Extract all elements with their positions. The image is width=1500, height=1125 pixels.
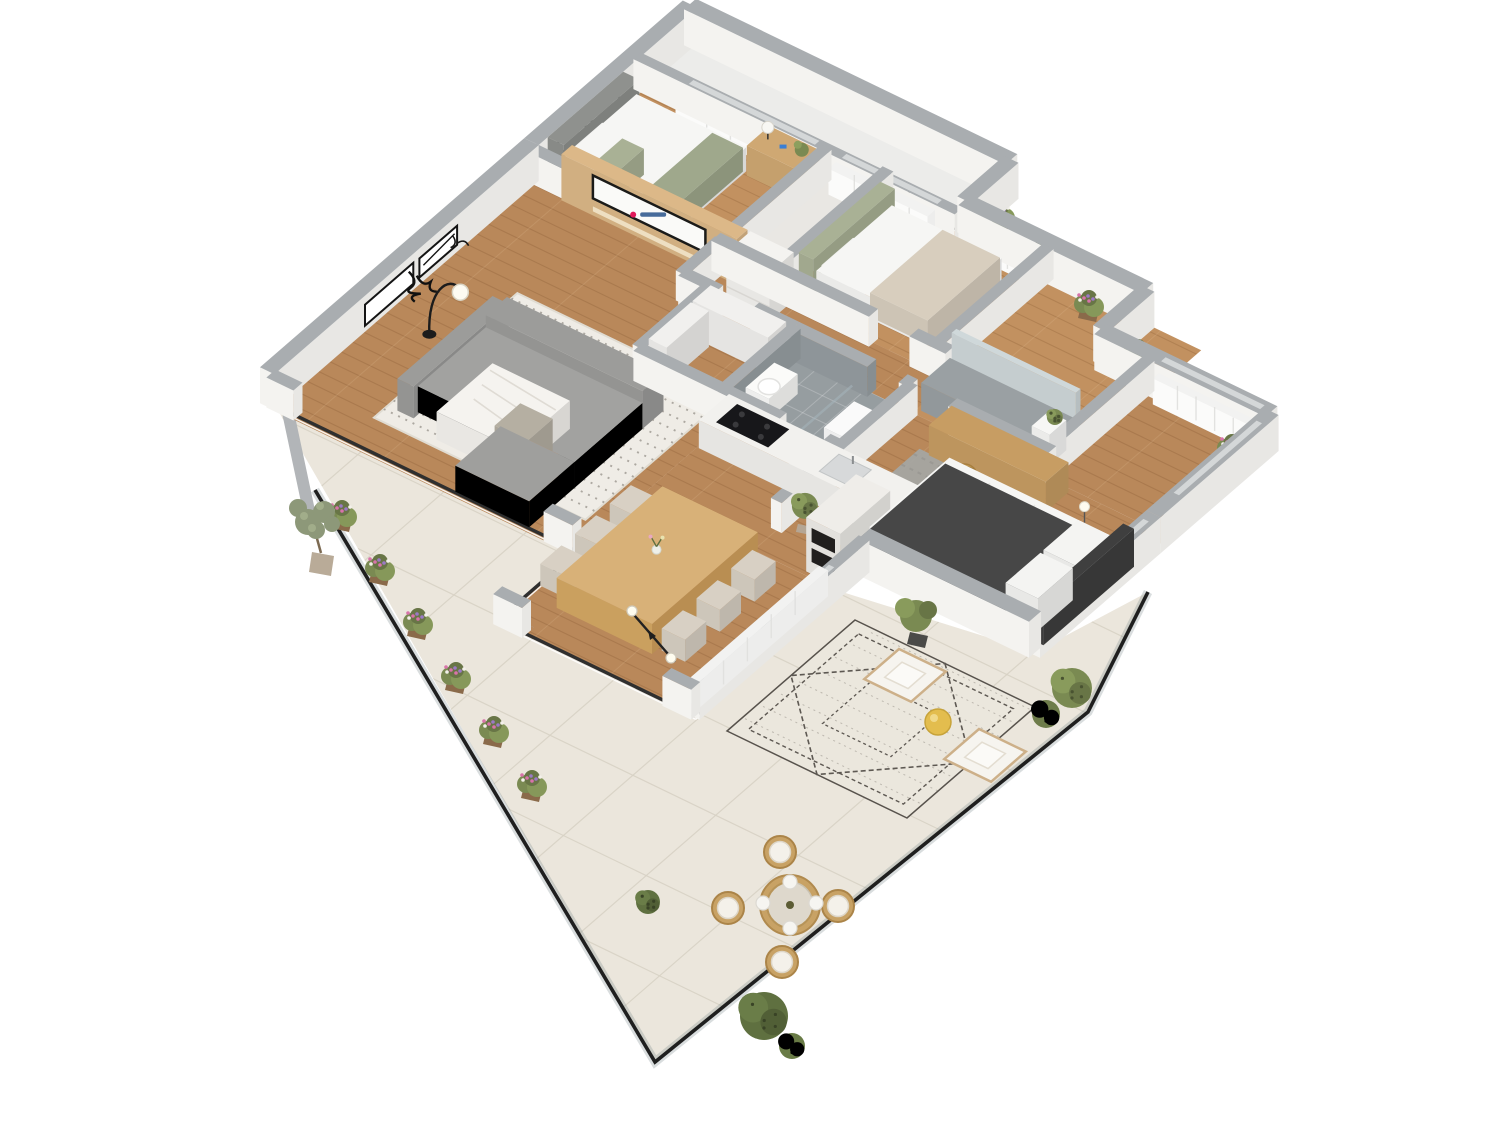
cooktop-part [739, 411, 745, 417]
lounge-bushes-part [1070, 696, 1073, 699]
olive-tree-part [309, 552, 334, 576]
round-dining-set-part [772, 952, 793, 973]
planters-southwest-part [382, 561, 386, 565]
terrace-bushes-part [774, 1025, 777, 1028]
planters-southwest-part [529, 774, 533, 778]
master-plant-part [803, 511, 806, 514]
planters-southwest-part [454, 671, 458, 675]
dresser-decor-part [780, 145, 787, 149]
planters-southwest-part [378, 563, 382, 567]
planters-southwest-part [538, 775, 542, 779]
terrace-bushes-part [790, 1051, 793, 1054]
vanity-plant-part [1053, 417, 1056, 420]
terrace-bushes-part [791, 1047, 794, 1050]
dresser-decor-part [794, 141, 802, 149]
lounge-plant-tree-part [895, 598, 915, 618]
round-dining-set-part [809, 896, 823, 910]
olive-tree-part [308, 524, 316, 532]
planters-southwest-part [449, 668, 453, 672]
round-dining-set-part [756, 896, 770, 910]
planters-southwest-part [482, 719, 486, 723]
lounge-bushes-part [1038, 706, 1041, 709]
lounge-bushes-part [1051, 718, 1054, 721]
olive-tree-part [324, 516, 340, 532]
planters-southwest-part [462, 667, 466, 671]
planters-southwest-part [411, 614, 415, 618]
arc-floor-lamp-part [452, 284, 468, 300]
dresser-decor-part [762, 121, 774, 133]
olive-tree [289, 499, 340, 576]
terrace-bushes-part [652, 900, 655, 903]
toilet-part [758, 379, 780, 395]
terrace-bushes-part [797, 1044, 800, 1047]
olive-tree-part [300, 512, 308, 520]
planters-southwest-part [530, 779, 534, 783]
planters-northeast-part [1086, 294, 1090, 298]
floor-plan-render [0, 0, 1500, 1125]
planters-northeast-part [1078, 298, 1082, 302]
side-table-yellow-part [930, 714, 938, 722]
planters-southwest-part [406, 611, 410, 615]
lounge-bushes-part [1044, 719, 1047, 722]
planters-southwest-part [415, 612, 419, 616]
planters-southwest-part [424, 613, 428, 617]
planters-southwest-part [407, 616, 411, 620]
terrace-bushes-part [652, 906, 655, 909]
cooktop-part [764, 424, 770, 430]
lounge-bushes-part [1071, 690, 1074, 693]
planters-southwest-part [373, 560, 377, 564]
vanity-plant-part [1057, 415, 1060, 418]
planters-southwest-part [348, 505, 352, 509]
tv-screen-part [640, 212, 666, 216]
planters-southwest-part [458, 669, 462, 673]
round-dining-set-part [770, 842, 791, 863]
planters-southwest-part [344, 507, 348, 511]
planters-southwest-part [453, 666, 457, 670]
planters-southwest-part [483, 724, 487, 728]
planters-northeast-part [1077, 293, 1081, 297]
planters-southwest-part [416, 617, 420, 621]
terrace-bushes-part [646, 906, 649, 909]
planters-southwest-part [386, 559, 390, 563]
tv-screen-part [630, 212, 636, 218]
round-dining-set-part [783, 921, 797, 935]
terrace-bushes-part [641, 895, 644, 898]
pendant-lamp-part [666, 653, 676, 663]
planters-southwest-part [525, 776, 529, 780]
table-vase-part [649, 535, 653, 539]
planters-northeast-part [1087, 299, 1091, 303]
planters-northeast-part [1095, 295, 1099, 299]
terrace-bushes-part [774, 1013, 777, 1016]
terrace-bushes-part [751, 1003, 754, 1006]
planters-southwest-part [520, 773, 524, 777]
planters-southwest-part [521, 778, 525, 782]
table-vase-part [661, 536, 665, 540]
planters-southwest-part [487, 722, 491, 726]
lounge-bushes-part [1051, 711, 1054, 714]
side-table-yellow-part [925, 709, 951, 735]
terrace-tiles-part [0, 254, 331, 739]
terrace-bushes [778, 1033, 805, 1059]
lounge-plant-tree-part [919, 601, 937, 619]
planters-southwest-part [492, 725, 496, 729]
planters-southwest-part [445, 670, 449, 674]
terrace-bushes-part [763, 1019, 766, 1022]
pendant-lamp-part [627, 606, 637, 616]
lounge-bushes-part [1045, 715, 1048, 718]
planters-southwest-part [369, 562, 373, 566]
planters-southwest-part [339, 504, 343, 508]
round-dining-set-part [718, 898, 739, 919]
scene-root [0, 0, 1279, 1125]
master-plant-part [797, 498, 800, 501]
round-dining-set-part [828, 896, 849, 917]
planters-southwest-part [335, 506, 339, 510]
planters-southwest-part [377, 558, 381, 562]
cooktop-part [733, 422, 739, 428]
planters-southwest-part [500, 721, 504, 725]
planters-southwest-part [534, 777, 538, 781]
planters-southwest-part [444, 665, 448, 669]
terrace-bushes-part [784, 1038, 787, 1041]
bedside-lamp-part [1080, 502, 1090, 512]
master-plant-part [809, 503, 812, 506]
lounge-bushes-part [1080, 695, 1083, 698]
planters-northeast-part [1082, 296, 1086, 300]
master-west-wall-part [771, 498, 782, 533]
lounge-bushes-part [1080, 685, 1083, 688]
planters-southwest-part [368, 557, 372, 561]
olive-tree-part [316, 502, 324, 510]
master-plant-part [803, 507, 806, 510]
vanity-plant-part [1049, 411, 1052, 414]
round-dining-set-part [786, 901, 794, 909]
terrace-bushes-part [797, 1050, 800, 1053]
planters-southwest-part [491, 720, 495, 724]
round-dining-set-part [783, 875, 797, 889]
planters-southwest-part [340, 509, 344, 513]
lounge-bushes-part [1061, 677, 1064, 680]
planters-northeast-part [1220, 437, 1224, 441]
planters-northeast-part [1091, 297, 1095, 301]
floor-plan-stage: 3D isometric floor plan rendering of an … [0, 0, 1500, 1125]
planters-southwest-part [420, 615, 424, 619]
terrace-bushes-part [647, 903, 650, 906]
vanity-plant-part [1057, 419, 1060, 422]
terrace-bushes [738, 992, 788, 1040]
planters-southwest-part [496, 723, 500, 727]
terrace-bushes-part [762, 1026, 765, 1029]
cooktop-part [758, 434, 764, 440]
